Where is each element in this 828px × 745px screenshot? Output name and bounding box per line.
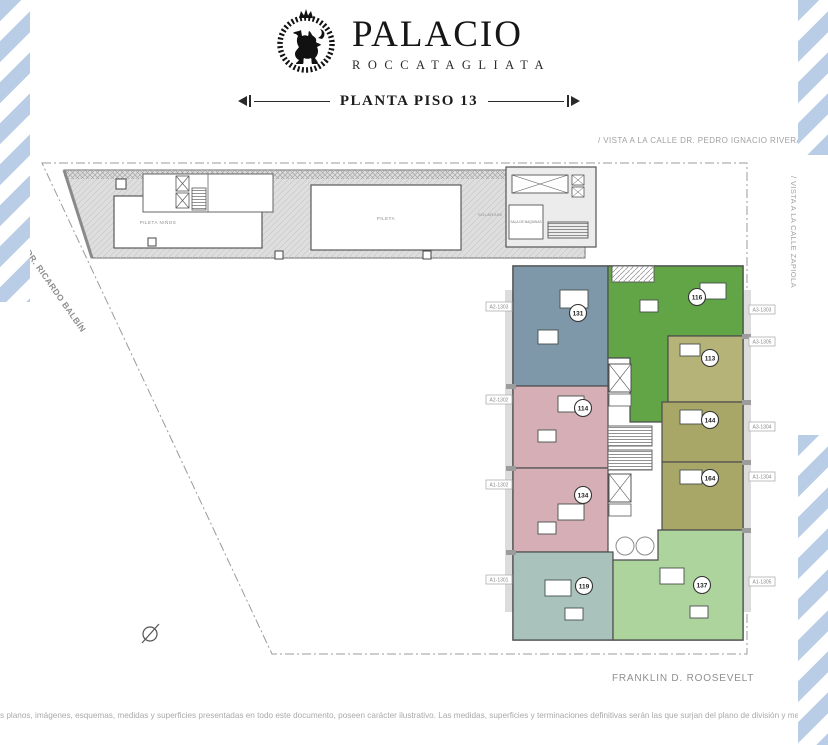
tag-left-3: A1-1302 xyxy=(490,483,509,489)
street-label-zapiola: / VISTA A LA CALLE ZAPIOLA xyxy=(789,176,798,288)
tag-right-5: A1-1305 xyxy=(753,580,772,586)
stripe-bar-left xyxy=(0,0,30,302)
tag-left-2: A2-1302 xyxy=(490,398,509,404)
divider-ornament-left-icon xyxy=(238,94,254,108)
tower-plan: 131 116 113 114 144 134 164 119 137 xyxy=(486,266,775,640)
unit-badge-114: 114 xyxy=(578,405,589,412)
lion-crest-icon xyxy=(271,6,341,78)
brand-subtitle: ROCCATAGLIATA xyxy=(352,58,551,73)
floorplan-drawing: PILETA NIÑOS PILETA SOLARIUM xyxy=(0,0,828,745)
unit-badge-134: 134 xyxy=(578,492,589,499)
divider-ornament-right-icon xyxy=(564,94,580,108)
street-label-rivera: / VISTA A LA CALLE DR. PEDRO IGNACIO RIV… xyxy=(598,136,802,145)
tag-right-4: A1-1304 xyxy=(753,475,772,481)
survey-marker-icon xyxy=(142,624,159,643)
balcony-strip-left xyxy=(505,290,513,612)
machine-room-label: SALA DE MAQUINAS xyxy=(510,220,541,224)
tag-right-1: A3-1303 xyxy=(753,308,772,314)
light-well xyxy=(616,537,634,555)
unit-badge-131: 131 xyxy=(573,310,584,317)
tag-left-1: A2-1303 xyxy=(490,305,509,311)
core-top-stair xyxy=(612,266,654,282)
legal-disclaimer: s planos, imágenes, esquemas, medidas y … xyxy=(0,711,828,720)
terrace-amenities: PILETA NIÑOS PILETA SOLARIUM xyxy=(64,167,596,259)
unit-badge-137: 137 xyxy=(697,582,708,589)
brand-block: PALACIO ROCCATAGLIATA xyxy=(352,16,551,73)
street-label-roosevelt: FRANKLIN D. ROOSEVELT xyxy=(612,673,754,684)
tag-left-4: A1-1301 xyxy=(490,578,509,584)
unit-badge-144: 144 xyxy=(705,417,716,424)
unit-badge-119: 119 xyxy=(579,583,590,590)
brand-name: PALACIO xyxy=(352,16,551,53)
unit-113 xyxy=(668,336,743,402)
lion-icon xyxy=(293,30,321,64)
kids-pool-label: PILETA NIÑOS xyxy=(140,219,176,225)
tag-right-2: A3-1305 xyxy=(753,340,772,346)
core-stair xyxy=(548,222,588,238)
terrace-service-rooms xyxy=(143,174,273,212)
divider-rule xyxy=(254,101,330,102)
stripe-bar-right-bottom xyxy=(798,435,828,745)
unit-badge-113: 113 xyxy=(705,355,716,362)
crown-icon xyxy=(299,9,313,18)
tag-right-3: A3-1304 xyxy=(753,425,772,431)
divider-rule xyxy=(488,101,564,102)
terrace-core: SALA DE MAQUINAS xyxy=(506,167,596,247)
unit-131 xyxy=(513,266,608,386)
page-title: PLANTA PISO 13 xyxy=(330,93,488,110)
terrace-stair xyxy=(192,188,206,210)
core-stair-flight xyxy=(608,450,652,470)
unit-badge-164: 164 xyxy=(705,475,716,482)
unit-badge-116: 116 xyxy=(692,294,703,301)
floorplan-sheet: PILETA NIÑOS PILETA SOLARIUM xyxy=(0,0,828,745)
main-pool-label: PILETA xyxy=(377,216,395,221)
light-well xyxy=(636,537,654,555)
core-stair-flight xyxy=(608,426,652,446)
unit-164 xyxy=(662,462,743,530)
solarium-label: SOLARIUM xyxy=(478,212,502,217)
plan-title-divider: PLANTA PISO 13 xyxy=(238,92,580,110)
stripe-bar-right-top xyxy=(798,0,828,155)
unit-144 xyxy=(662,402,743,462)
